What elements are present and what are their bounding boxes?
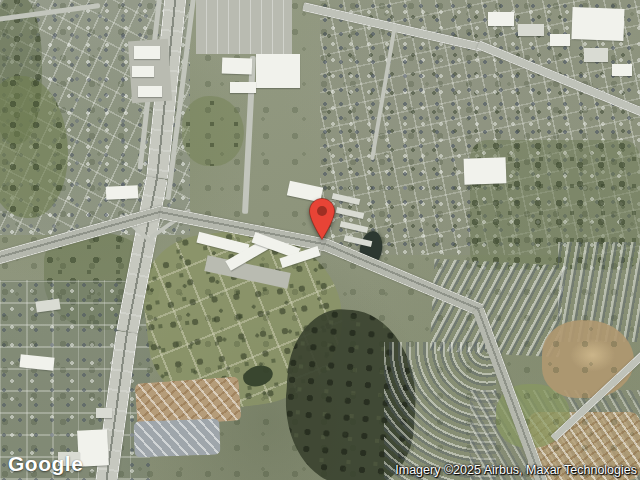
building-bottomleft-3 [96, 408, 112, 418]
building-retail-3 [138, 86, 162, 97]
building-topright-2 [518, 24, 544, 36]
building-topright-3 [550, 34, 570, 46]
building-topcenter-2 [230, 82, 256, 93]
google-logo[interactable]: Google [8, 452, 83, 476]
building-bigbox [464, 157, 507, 184]
map-pin-icon[interactable] [308, 197, 336, 241]
building-topright-4 [584, 48, 608, 62]
building-retail-2 [132, 66, 154, 77]
building-retail-1 [134, 46, 160, 59]
building-topright-1 [488, 12, 514, 26]
map-pin-body [310, 199, 335, 240]
apartments-gray [133, 419, 220, 458]
terrain-dirt-patch [542, 320, 634, 398]
building-school [106, 185, 139, 200]
road-top-center [242, 56, 256, 214]
building-mall [256, 54, 300, 88]
imagery-attribution: Imagery ©2025 Airbus, Maxar Technologies [395, 463, 637, 477]
building-topright-5 [612, 64, 632, 76]
parking-lot-topcenter [196, 0, 292, 54]
map-pin-hole [317, 206, 327, 216]
building-topcenter-1 [222, 57, 253, 74]
building-topright-large [571, 7, 624, 41]
satellite-map[interactable]: Google Imagery ©2025 Airbus, Maxar Techn… [0, 0, 640, 480]
terrain-green-by-highway [182, 96, 244, 166]
